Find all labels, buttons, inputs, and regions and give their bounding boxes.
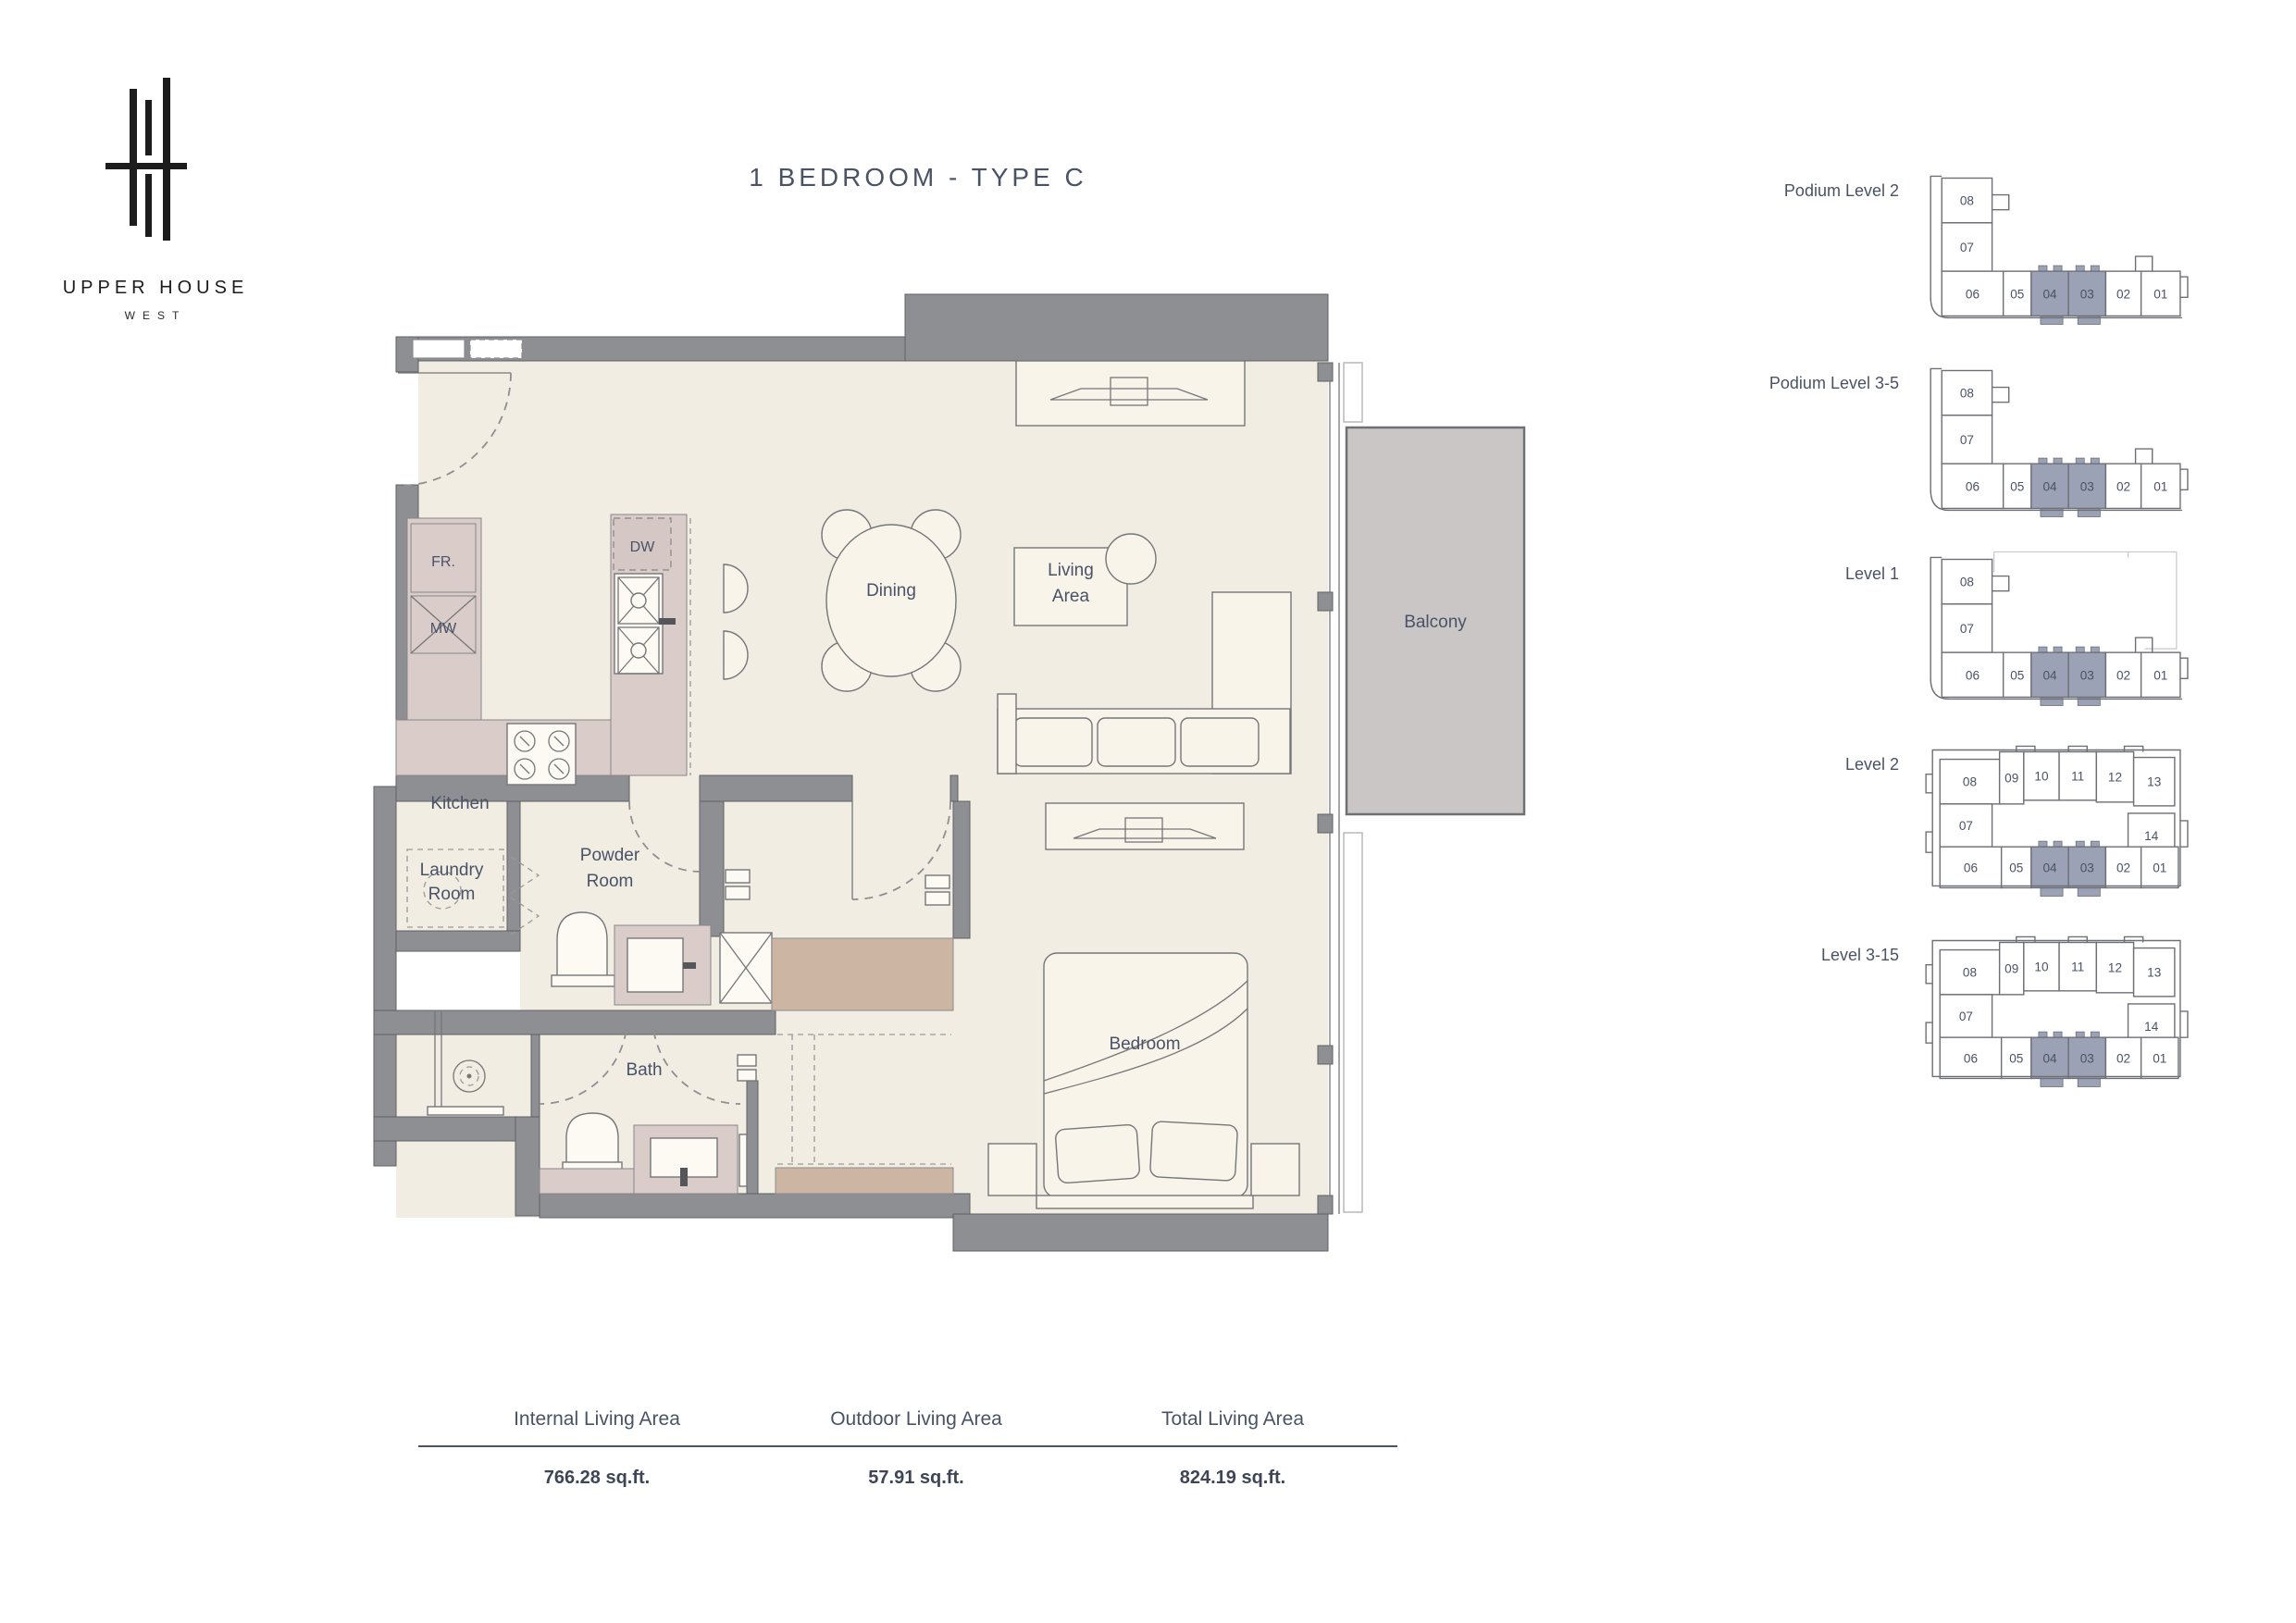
unit-number: 12	[2108, 771, 2122, 785]
keyplan-outline	[1992, 195, 2009, 210]
unit-number: 03	[2080, 861, 2094, 874]
keyplan-ghost-outline	[1994, 551, 2177, 649]
living-label2: Area	[1052, 587, 1090, 606]
keyplan-outline	[2180, 658, 2188, 678]
unit-number: 07	[1960, 241, 1974, 254]
floor-plan: Kitchen Laundry Room Powder Room Bath Di…	[366, 285, 1545, 1295]
unit-number: 04	[2042, 861, 2057, 874]
window	[470, 340, 522, 358]
internal-area-label: Internal Living Area	[449, 1408, 745, 1431]
unit-number: 09	[2004, 962, 2018, 976]
outdoor-area-column: Outdoor Living Area	[768, 1408, 1064, 1431]
keyplan-outline	[2180, 469, 2188, 489]
unit-number: 06	[1964, 861, 1978, 874]
towel-rail	[739, 1134, 747, 1186]
keyplan-label-level-1: Level 1	[1684, 564, 1899, 584]
keyplan-outline	[1992, 576, 2009, 591]
keyplan-outline	[2068, 746, 2087, 751]
bath-label: Bath	[626, 1060, 662, 1080]
keyplan-outline	[1926, 774, 1932, 793]
brand-logo-icon	[104, 48, 192, 289]
floorplan-page: UPPER HOUSE WEST 1 BEDROOM - TYPE C	[0, 0, 2296, 1623]
door-jamb	[738, 1070, 756, 1081]
living-label: Living	[1048, 561, 1094, 580]
unit-number: 03	[2080, 479, 2094, 493]
nightstand	[988, 1144, 1036, 1196]
window	[413, 340, 465, 358]
door-jamb	[726, 870, 750, 883]
unit-number: 07	[1959, 1010, 1973, 1023]
pillow	[1149, 1121, 1237, 1182]
wardrobe	[776, 1168, 953, 1194]
unit-number: 07	[1960, 622, 1974, 636]
total-area-label: Total Living Area	[1085, 1408, 1381, 1431]
keyplan-outline	[1992, 388, 2009, 403]
unit-number: 01	[2153, 668, 2167, 682]
unit-number: 14	[2144, 829, 2159, 843]
keyplan-outline	[2125, 936, 2143, 942]
toilet	[557, 912, 607, 983]
keyplan-outline	[2125, 746, 2143, 751]
unit-number: 13	[2147, 775, 2161, 789]
unit-number: 10	[2034, 770, 2049, 784]
unit-number: 02	[2116, 861, 2130, 874]
keyplan-level-2: 0809101112130714060504030201	[1905, 740, 2193, 907]
unit-number: 03	[2080, 1051, 2094, 1065]
kitchen-label: Kitchen	[430, 794, 489, 813]
unit-number: 12	[2108, 961, 2122, 975]
keyplan-outline	[2068, 936, 2087, 942]
internal-area-value-wrap: 766.28 sq.ft.	[449, 1468, 745, 1489]
unit-number: 01	[2153, 861, 2166, 874]
side-table	[1106, 534, 1156, 584]
unit-number: 06	[1964, 1051, 1978, 1065]
keyplan-outline	[2017, 746, 2035, 751]
internal-area-value: 766.28 sq.ft.	[449, 1468, 745, 1489]
pillow	[1055, 1124, 1140, 1183]
keyplan-podium-level-2: 0807060504030201	[1905, 168, 2193, 335]
bedroom-label: Bedroom	[1109, 1035, 1180, 1054]
keyplan-label-podium-level-3-5: Podium Level 3-5	[1684, 374, 1899, 393]
powder-label2: Room	[587, 872, 634, 891]
unit-number: 05	[2010, 287, 2024, 301]
keyplan-podium-level-3-5: 0807060504030201	[1905, 361, 2193, 527]
unit-number: 08	[1963, 775, 1977, 789]
unit-number: 11	[2071, 770, 2084, 784]
unit-number: 01	[2153, 1051, 2166, 1065]
unit-number: 01	[2153, 287, 2167, 301]
keyplan-outline	[2180, 1011, 2188, 1037]
unit-number: 05	[2009, 861, 2023, 874]
toilet	[566, 1113, 618, 1169]
wardrobe	[772, 938, 953, 1010]
keyplan-outline	[2180, 821, 2188, 847]
unit-number: 02	[2116, 668, 2130, 682]
internal-area-column: Internal Living Area	[449, 1408, 745, 1431]
door-jamb	[925, 875, 949, 888]
keyplan-label-level-3-15: Level 3-15	[1684, 946, 1899, 965]
dishwasher-label: DW	[630, 539, 656, 555]
unit-number: 07	[1960, 433, 1974, 447]
keyplan-label-podium-level-2: Podium Level 2	[1684, 181, 1899, 201]
unit-number: 04	[2042, 287, 2057, 301]
table-divider	[418, 1445, 1397, 1447]
dining-label: Dining	[866, 581, 916, 601]
brand-subtitle: WEST	[48, 309, 263, 322]
unit-number: 03	[2080, 287, 2094, 301]
unit-number: 08	[1963, 966, 1977, 980]
unit-number: 02	[2116, 287, 2130, 301]
unit-number: 08	[1960, 576, 1974, 589]
unit-number: 03	[2080, 668, 2094, 682]
unit-number: 10	[2034, 960, 2049, 974]
nightstand	[1251, 1144, 1299, 1196]
total-area-value-wrap: 824.19 sq.ft.	[1085, 1468, 1381, 1489]
door-jamb	[925, 892, 949, 905]
keyplan-outline	[1926, 1022, 1932, 1043]
outdoor-area-value-wrap: 57.91 sq.ft.	[768, 1468, 1064, 1489]
total-area-value: 824.19 sq.ft.	[1085, 1468, 1381, 1489]
keyplan-outline	[2136, 449, 2153, 464]
keyplan-outline	[1926, 832, 1932, 852]
keyplan-outline	[2180, 277, 2188, 297]
unit-number: 05	[2010, 479, 2024, 493]
headboard	[1036, 1196, 1253, 1208]
unit-number: 14	[2144, 1020, 2159, 1034]
unit-number: 05	[2009, 1051, 2023, 1065]
total-area-column: Total Living Area	[1085, 1408, 1381, 1431]
shaft	[720, 933, 772, 1003]
powder-label: Powder	[580, 846, 640, 865]
unit-number: 01	[2153, 479, 2167, 493]
unit-number: 05	[2010, 668, 2024, 682]
unit-number: 07	[1959, 819, 1973, 833]
unit-number: 04	[2042, 1051, 2057, 1065]
unit-number: 06	[1966, 479, 1980, 493]
keyplan-outline	[2136, 638, 2153, 652]
fridge-label: FR.	[431, 554, 455, 570]
tv-console	[1016, 361, 1245, 426]
keyplan-label-level-2: Level 2	[1684, 755, 1899, 774]
unit-number: 11	[2071, 960, 2084, 974]
keyplan-outline	[2017, 936, 2035, 942]
keyplan-level-3-15: 0809101112130714060504030201	[1905, 931, 2193, 1097]
unit-number: 08	[1960, 194, 1974, 208]
keyplan-outline	[1926, 965, 1932, 984]
laundry-label: Laundry	[420, 861, 484, 880]
unit-number: 13	[2147, 966, 2161, 980]
unit-number: 02	[2116, 1051, 2130, 1065]
dining-set	[822, 510, 961, 691]
balcony-label: Balcony	[1404, 613, 1467, 632]
outdoor-area-label: Outdoor Living Area	[768, 1408, 1064, 1431]
keyplan-level-1: 0807060504030201	[1905, 550, 2193, 716]
unit-number: 06	[1966, 287, 1980, 301]
unit-number: 08	[1960, 387, 1974, 401]
laundry-label2: Room	[428, 885, 476, 904]
unit-number: 06	[1966, 668, 1980, 682]
page-title: 1 BEDROOM - TYPE C	[270, 163, 1566, 192]
unit-number: 02	[2116, 479, 2130, 493]
door-jamb	[738, 1055, 756, 1066]
unit-number: 09	[2004, 772, 2018, 786]
door-jamb	[726, 886, 750, 899]
microwave-label: MW	[430, 621, 457, 637]
outdoor-area-value: 57.91 sq.ft.	[768, 1468, 1064, 1489]
unit-number: 04	[2042, 479, 2057, 493]
keyplan-outline	[2136, 256, 2153, 271]
brand-name: UPPER HOUSE	[48, 278, 263, 299]
unit-number: 04	[2042, 668, 2057, 682]
